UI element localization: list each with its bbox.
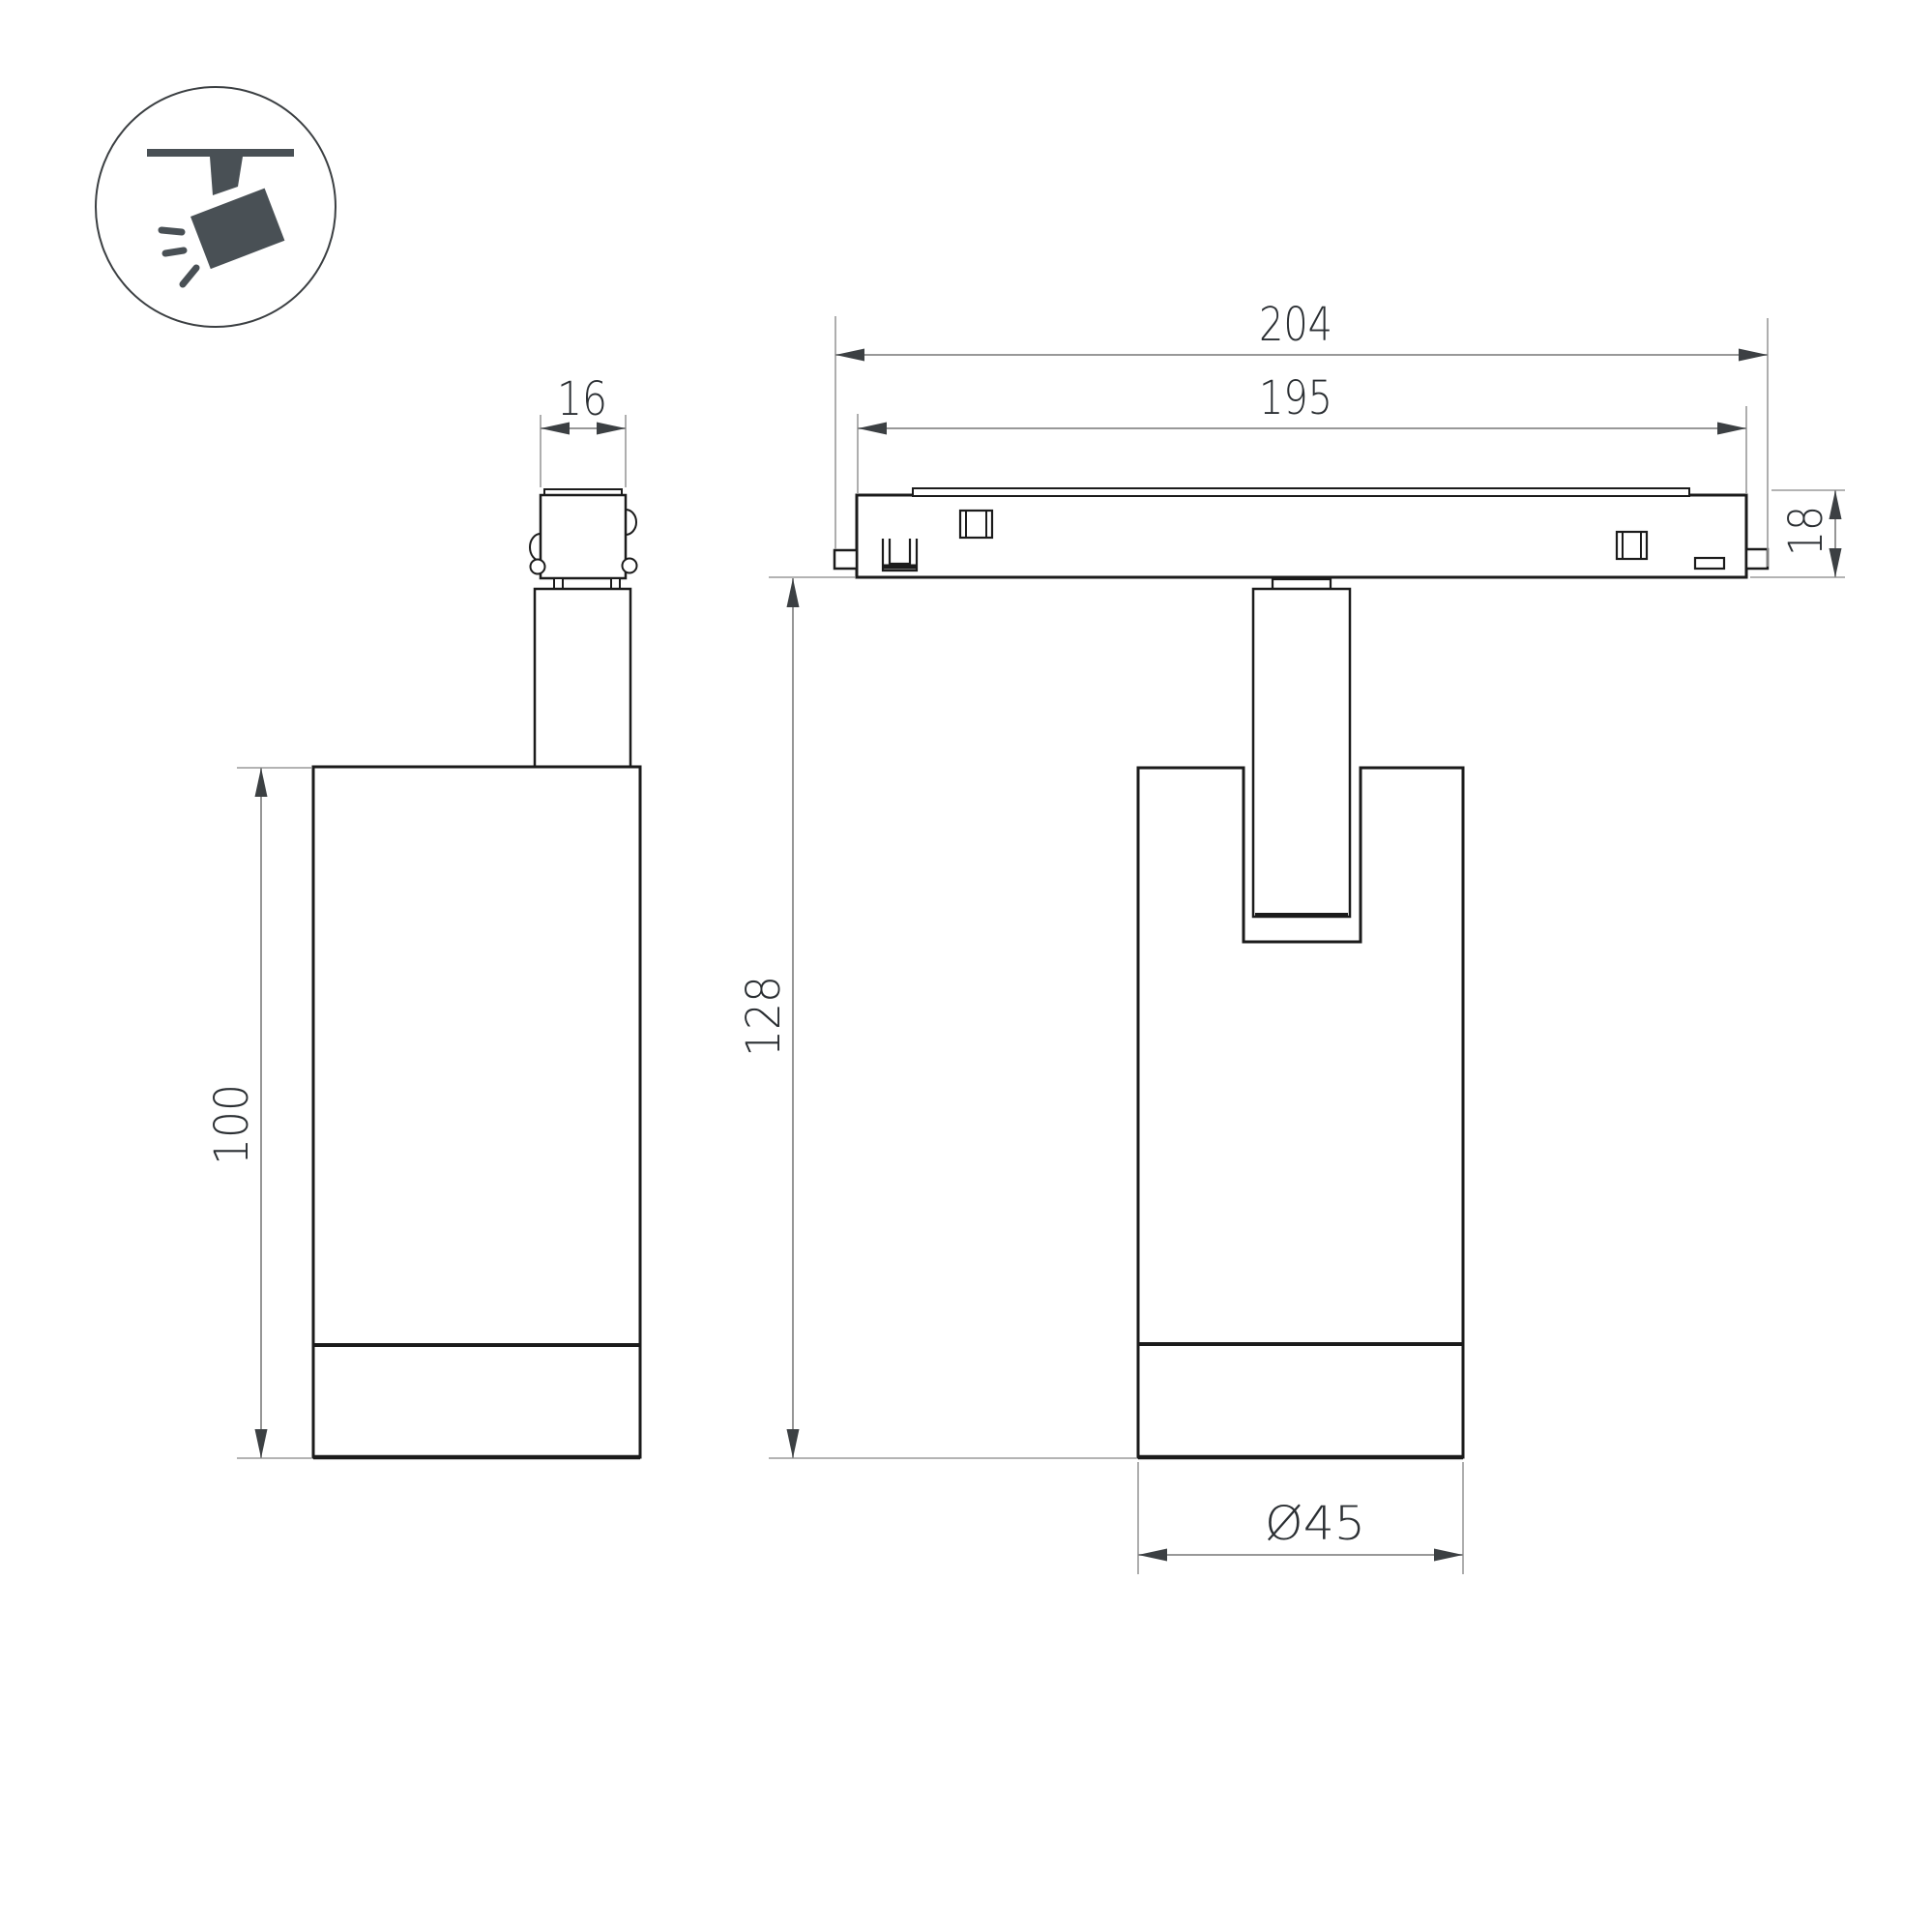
drawing-canvas: 16 100 — [0, 0, 1932, 1932]
adapter-neck-post-left — [554, 578, 563, 589]
dimension-label-195: 195 — [1259, 371, 1332, 425]
adapter-left-tab — [530, 534, 541, 561]
adapter-neck-post-right — [611, 578, 620, 589]
stem-side — [535, 589, 630, 767]
dimension-195: 195 — [858, 371, 1746, 494]
dimension-16: 16 — [541, 372, 626, 487]
rail-top-strip — [913, 488, 1689, 496]
dimension-label-204: 204 — [1259, 298, 1332, 352]
stem-front — [1253, 589, 1350, 917]
dimension-label-100: 100 — [205, 1084, 259, 1165]
adapter-right-tab — [626, 510, 636, 535]
spot-body-side — [313, 767, 640, 1457]
dimension-label-18: 18 — [1779, 506, 1833, 556]
track-rail — [857, 495, 1746, 577]
track-spotlight-icon — [96, 87, 336, 327]
dimension-100: 100 — [205, 768, 311, 1458]
icon-track-bar — [147, 149, 294, 157]
dimension-label-128: 128 — [737, 976, 791, 1057]
dimension-drawing: 16 100 — [0, 0, 1932, 1932]
dimension-128: 128 — [737, 577, 1136, 1458]
adapter-right-screw — [623, 559, 637, 573]
stem-connector-front — [1273, 579, 1331, 589]
rail-end-cap-right — [1746, 549, 1768, 569]
dimension-diameter-45: Ø45 — [1138, 1462, 1463, 1574]
dimension-label-diameter-45: Ø45 — [1265, 1497, 1365, 1551]
spotlight-on-track-front-view: 204 195 18 128 — [737, 298, 1845, 1574]
adapter-left-screw — [531, 560, 545, 574]
track-adapter — [541, 495, 626, 578]
spotlight-side-view: 16 100 — [205, 372, 640, 1458]
dimension-label-16: 16 — [557, 372, 607, 426]
rail-end-cap-left — [834, 550, 857, 569]
icon-circle — [96, 87, 336, 327]
